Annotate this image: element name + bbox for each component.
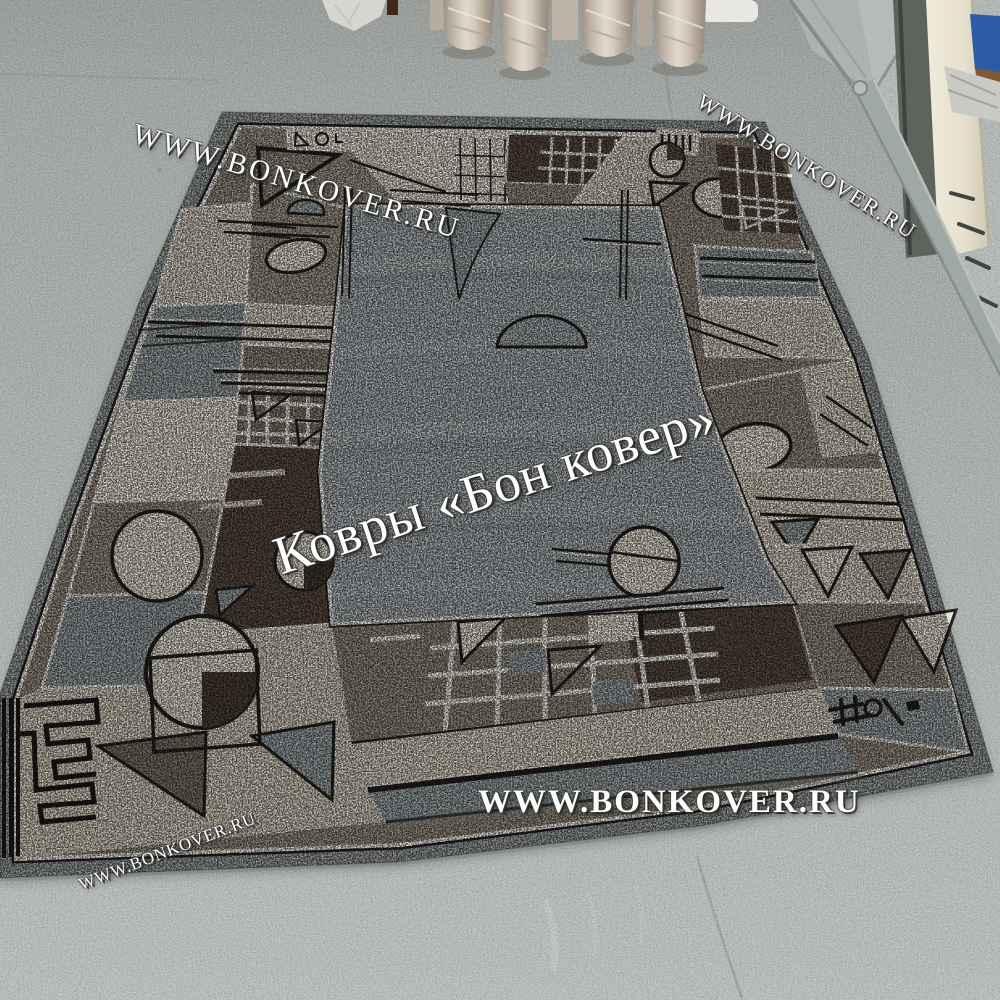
- carpet-roll: [442, 0, 496, 59]
- carpet-roll: [579, 0, 635, 66]
- carpet-roll: [652, 0, 708, 76]
- watermark-bottom-center: WWW.BONKOVER.RU: [478, 784, 861, 821]
- furniture-leg: [387, 0, 398, 15]
- wrapped-bundle: [700, 0, 758, 22]
- strip-curl: [853, 81, 867, 95]
- rug-product-photo: WWW.BONKOVER.RU WWW.BONKOVER.RU Ковры «Б…: [0, 0, 1000, 1000]
